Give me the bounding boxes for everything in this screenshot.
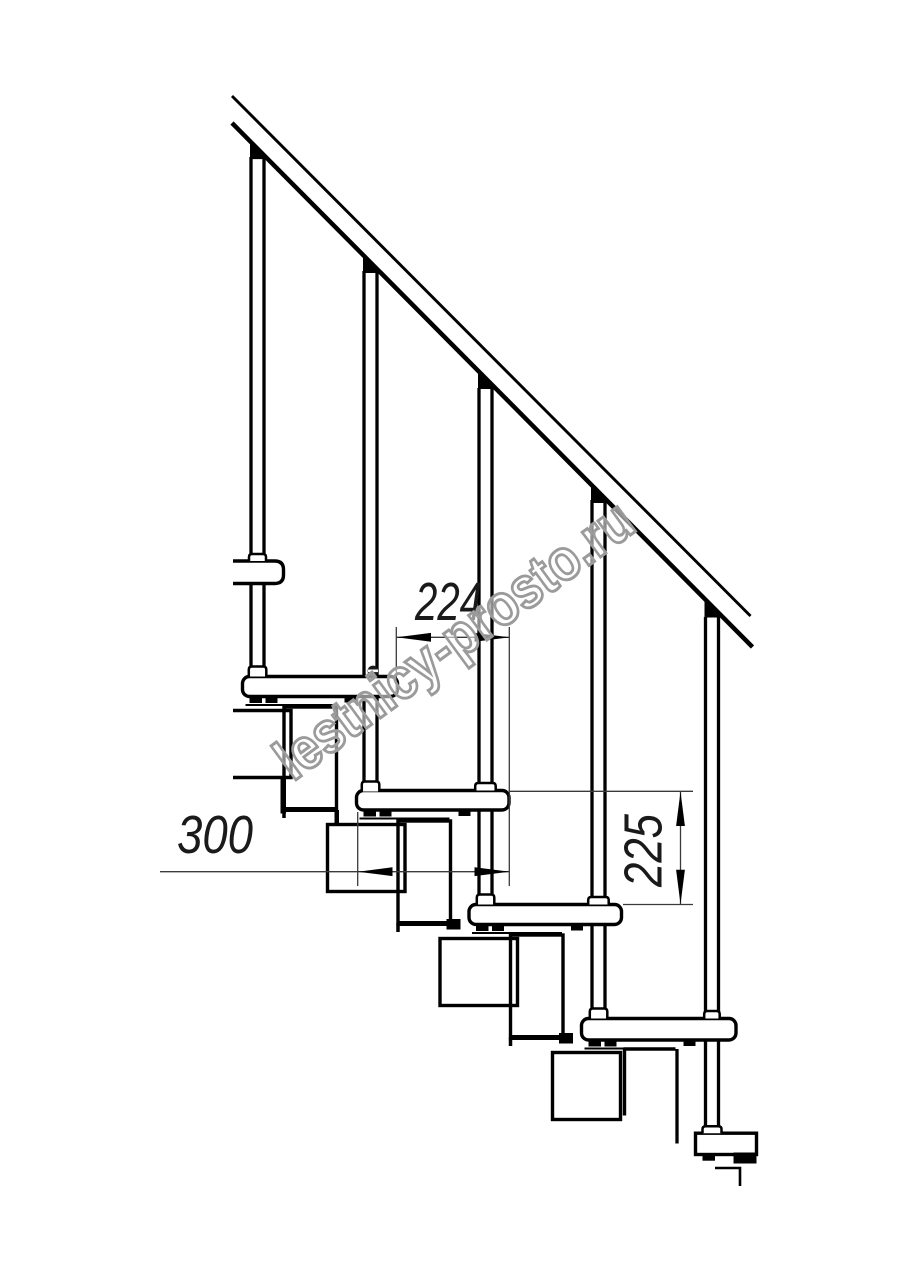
svg-text:225: 225 <box>614 813 674 888</box>
svg-text:300: 300 <box>177 805 253 865</box>
